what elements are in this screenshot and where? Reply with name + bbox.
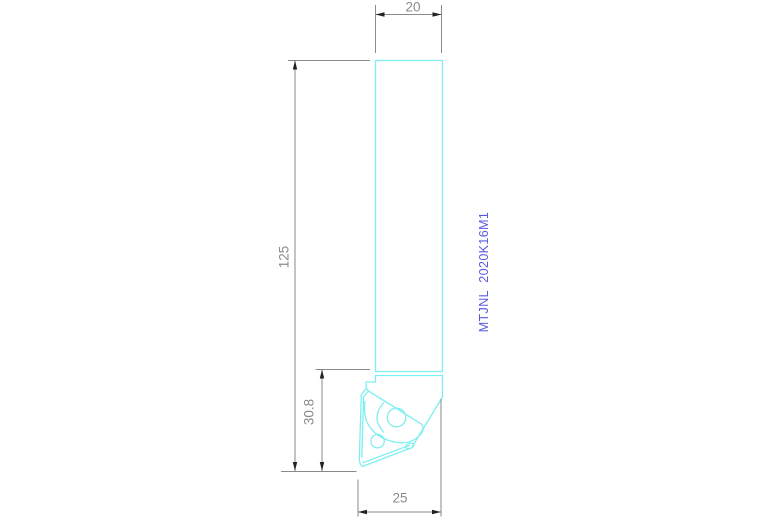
drawing-svg xyxy=(0,0,767,523)
insert-hole xyxy=(371,435,384,448)
dim-head-length-label: 30.8 xyxy=(302,399,316,425)
arrow-down-icon xyxy=(293,462,297,471)
shank-rectangle xyxy=(376,61,443,372)
cad-drawing-canvas: 20 125 30.8 25 MTJNL 2020K16M1 xyxy=(0,0,767,523)
arrow-right-icon xyxy=(433,12,442,16)
arrow-right-icon xyxy=(432,510,441,514)
clamp-screw-hole xyxy=(387,408,406,427)
head-corner-radius xyxy=(405,442,415,450)
clamp-top-edge xyxy=(366,389,421,424)
part-number-label: MTJNL 2020K16M1 xyxy=(478,212,491,333)
dimension-head-length xyxy=(281,370,370,472)
dim-overall-length-label: 125 xyxy=(277,246,291,269)
arrow-left-icon xyxy=(358,510,367,514)
arrow-left-icon xyxy=(376,12,385,16)
dim-top-width-label: 20 xyxy=(405,0,420,14)
arrow-up-icon xyxy=(320,370,324,379)
clamp-screw-boss-arc xyxy=(377,403,384,432)
tool-head-outline xyxy=(359,382,442,467)
insert-bottom-edge-inner xyxy=(363,445,410,463)
arrow-up-icon xyxy=(293,61,297,70)
arrow-down-icon xyxy=(320,462,324,471)
dim-bottom-width-label: 25 xyxy=(392,491,407,505)
head-left-step xyxy=(366,382,375,389)
insert-bottom-edge-outer xyxy=(362,448,411,467)
tool-shank-outline xyxy=(376,61,443,398)
